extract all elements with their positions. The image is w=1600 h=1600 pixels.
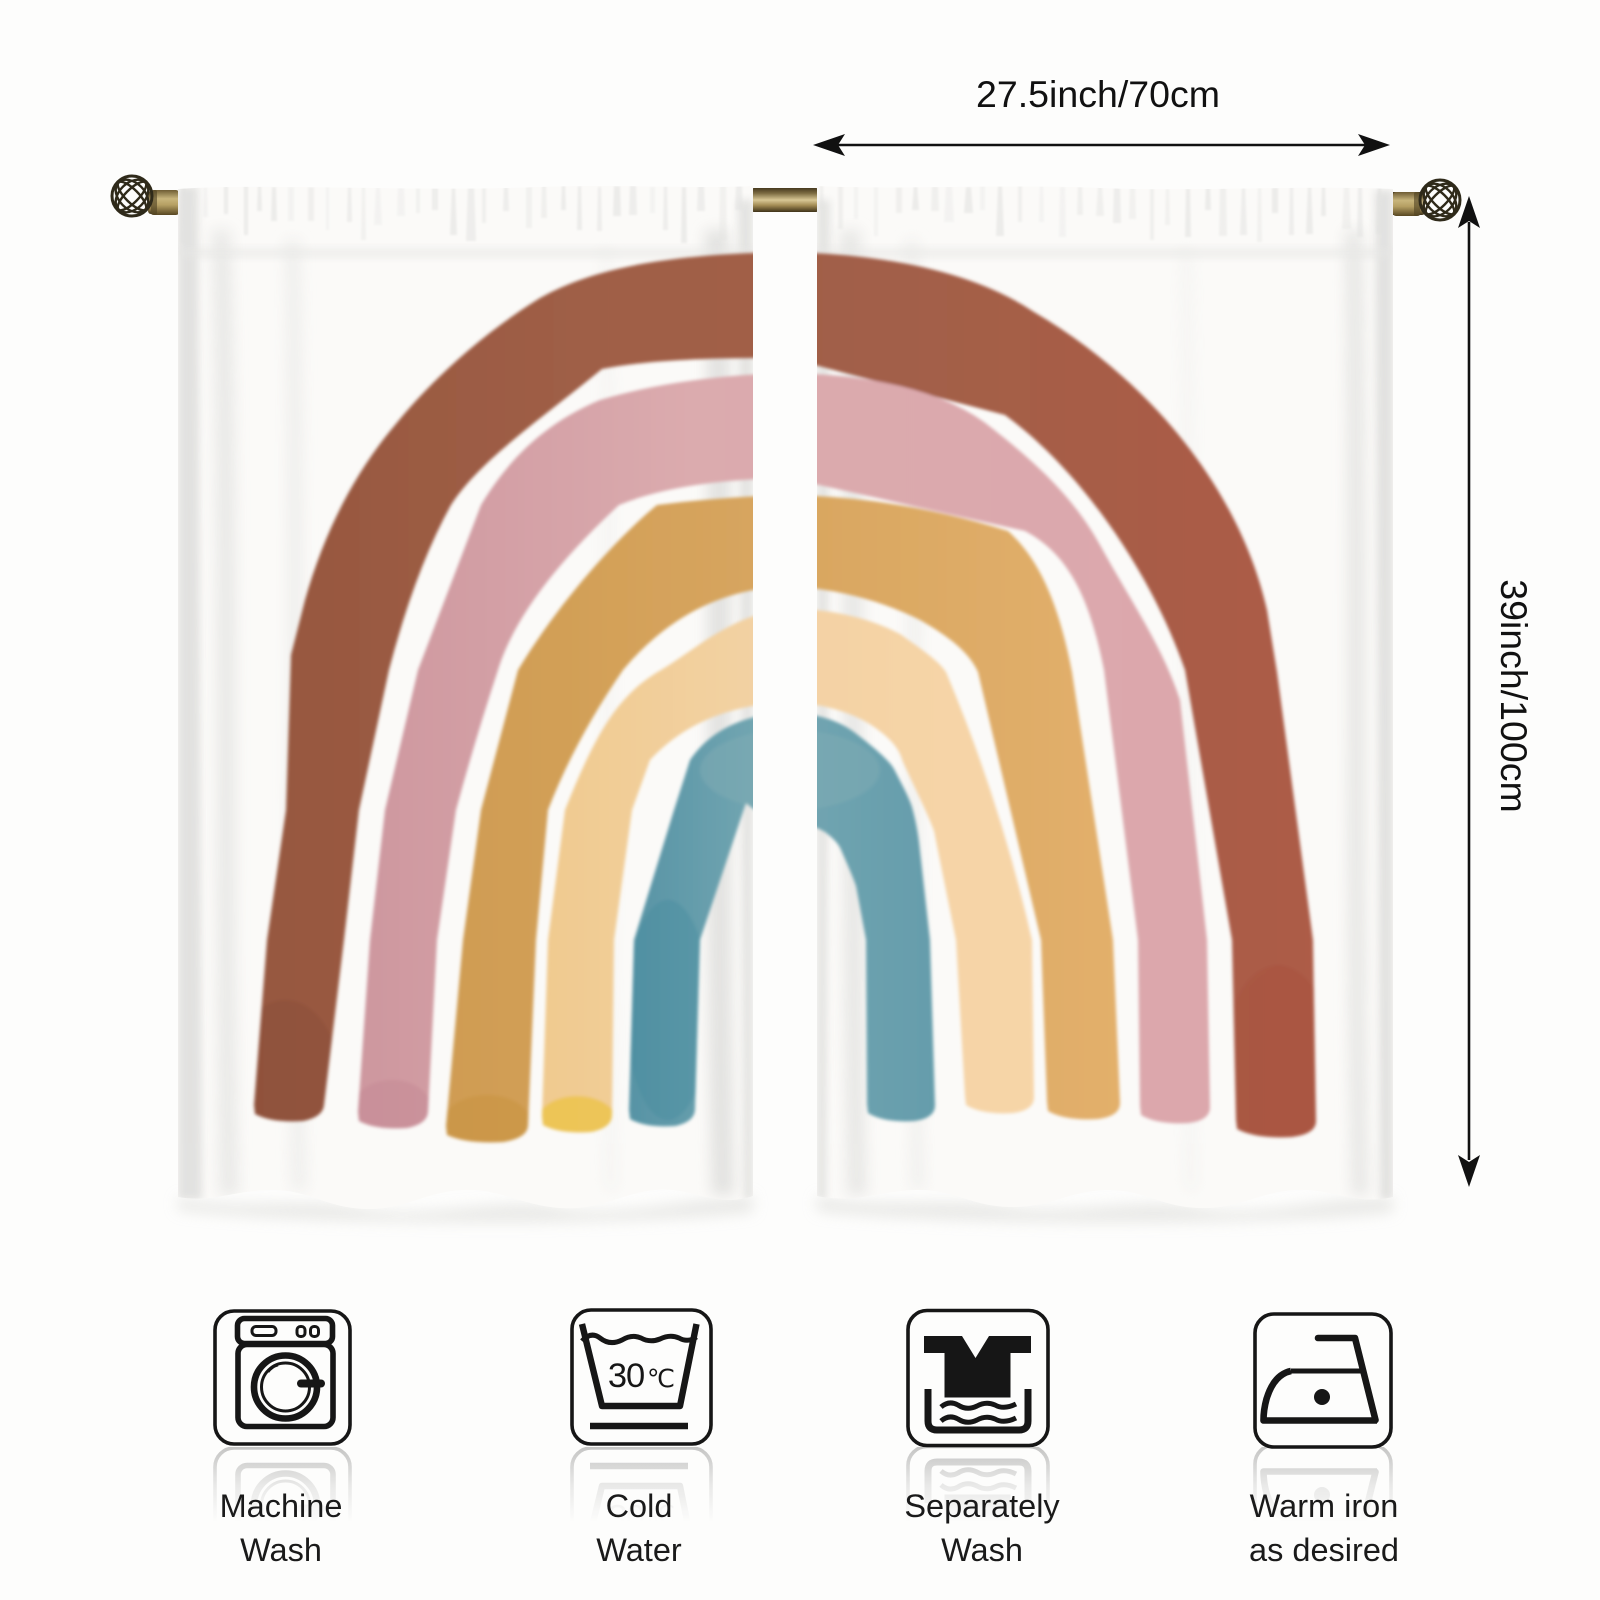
svg-text:Cold: Cold [606, 1488, 673, 1524]
svg-text:℃: ℃ [647, 1365, 675, 1393]
svg-text:30: 30 [608, 1357, 644, 1395]
svg-text:Machine: Machine [220, 1488, 343, 1524]
svg-text:27.5inch/70cm: 27.5inch/70cm [976, 73, 1220, 115]
svg-text:Wash: Wash [941, 1532, 1023, 1568]
svg-text:Warm iron: Warm iron [1250, 1488, 1399, 1524]
svg-text:Wash: Wash [240, 1532, 322, 1568]
svg-text:as desired: as desired [1249, 1532, 1399, 1568]
svg-text:Separately: Separately [904, 1488, 1060, 1524]
svg-text:Water: Water [596, 1532, 682, 1568]
svg-text:39inch/100cm: 39inch/100cm [1493, 579, 1535, 812]
